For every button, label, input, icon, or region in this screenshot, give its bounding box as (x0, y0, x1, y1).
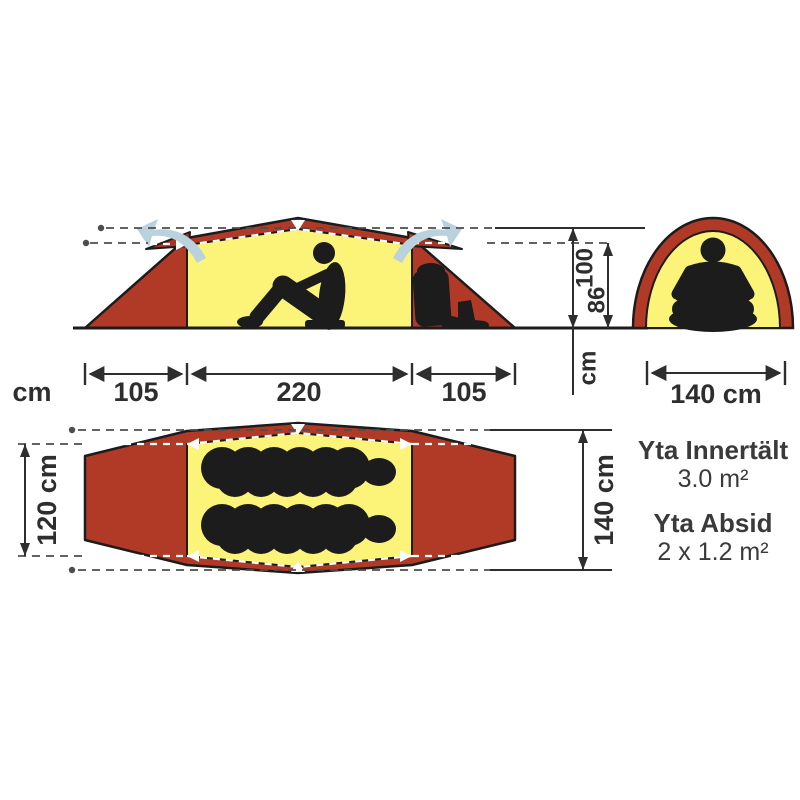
guide-dot (69, 567, 75, 573)
front-width-label: 140 cm (670, 379, 762, 409)
guide-dot (98, 225, 104, 231)
diagram-svg: 100 cm 86 cm 105 220 105 (0, 0, 800, 800)
height-inner-label: 86 (584, 287, 611, 314)
width-right-label: 105 (441, 377, 486, 407)
area-info: Yta Innertält 3.0 m² Yta Absid 2 x 1.2 m… (638, 435, 789, 566)
top-view: 120 cm 140 cm (18, 423, 619, 573)
side-view: 100 cm 86 cm 105 220 105 (12, 218, 648, 407)
guide-dot (83, 240, 89, 246)
width-unit-label: cm (12, 377, 51, 407)
side-inner-tent (187, 229, 412, 328)
width-center-label: 220 (276, 377, 321, 407)
top-outer-width-label: 140 cm (589, 454, 619, 546)
vestibule-area-title: Yta Absid (654, 508, 773, 538)
height-total-label: 100 (572, 248, 599, 288)
guide-dot (69, 427, 75, 433)
dimension-outer-width-140: 140 cm (578, 430, 619, 570)
dimension-front-width: 140 cm (647, 361, 785, 409)
dimension-widths: cm 105 220 105 (12, 363, 515, 407)
tent-dimensions-diagram: 100 cm 86 cm 105 220 105 (0, 0, 800, 800)
inner-area-value: 3.0 m² (678, 465, 749, 493)
top-inner-width-label: 120 cm (32, 454, 62, 546)
inner-area-title: Yta Innertält (638, 435, 789, 465)
front-view: 140 cm (633, 218, 793, 409)
width-left-label: 105 (113, 377, 158, 407)
vestibule-area-value: 2 x 1.2 m² (657, 538, 768, 566)
dimension-inner-width-120: 120 cm (20, 444, 62, 556)
height-unit-label: cm (575, 351, 602, 386)
